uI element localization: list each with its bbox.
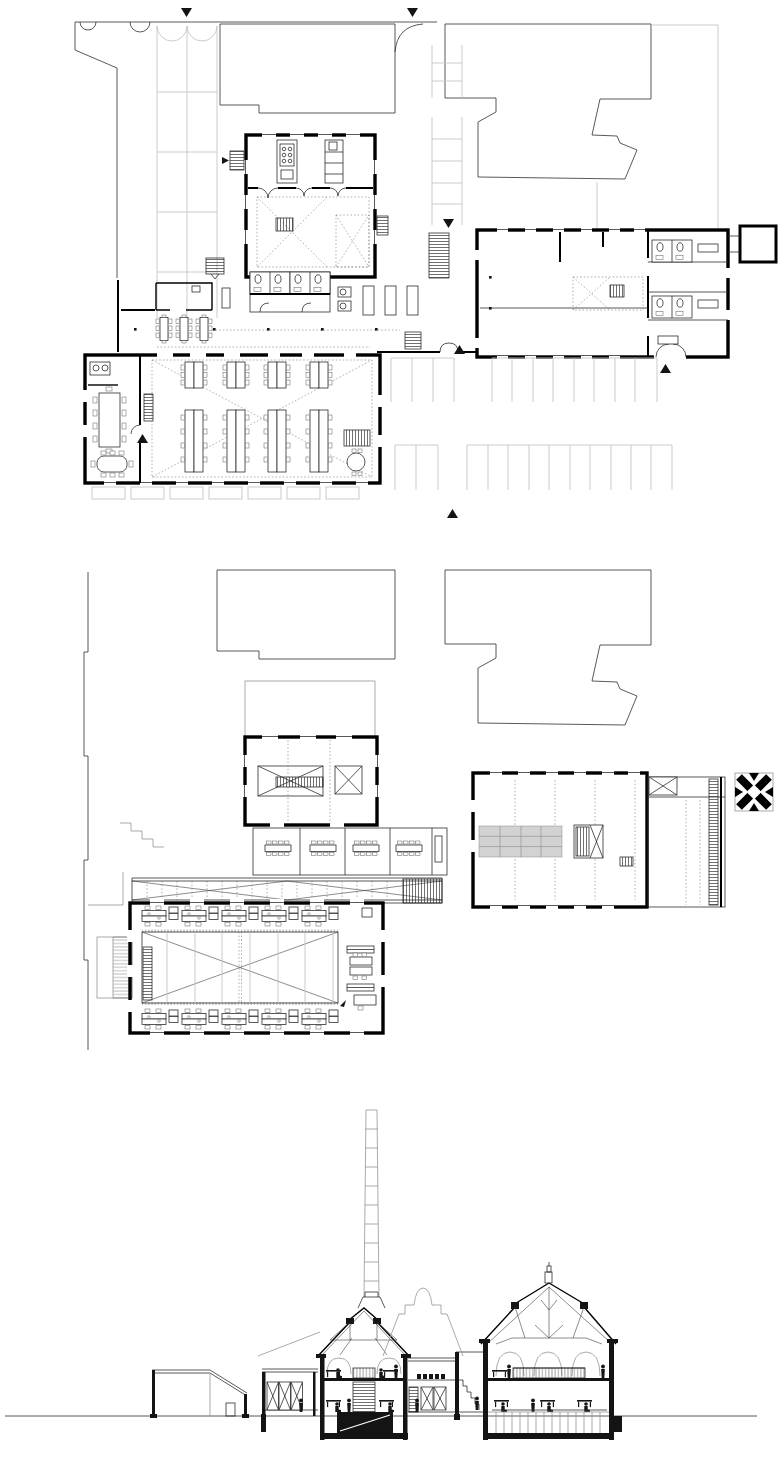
large-hall-section <box>479 1262 622 1440</box>
side-stair <box>377 216 388 235</box>
stair-core <box>325 140 343 183</box>
marker-up-icon <box>447 509 458 518</box>
north-hall-upper <box>241 733 381 828</box>
cross-section <box>5 1110 757 1440</box>
marker-down-icon <box>181 8 192 17</box>
north-hall <box>222 131 388 289</box>
east-hall <box>429 219 776 360</box>
corridor-furniture <box>338 286 477 354</box>
marker-down-icon <box>443 219 454 228</box>
shed-section <box>150 1370 249 1418</box>
void-opening <box>142 930 338 1006</box>
stair-core <box>574 825 633 866</box>
middle-link-section <box>408 1352 483 1420</box>
meeting-rooms <box>253 828 447 875</box>
stair <box>144 394 153 421</box>
glazed-link <box>261 1369 318 1432</box>
drawing-canvas <box>0 0 780 1472</box>
cross-logo <box>735 773 773 811</box>
roof-truss <box>487 1287 612 1344</box>
roof-projection <box>257 197 369 267</box>
marker-down-icon <box>407 8 418 17</box>
oval-table <box>91 451 133 477</box>
marker-up-icon <box>137 434 148 443</box>
service-core <box>277 140 297 183</box>
bridge <box>132 878 442 903</box>
architectural-sheet <box>0 0 780 1472</box>
context-buildings <box>220 24 718 228</box>
entry-ramp <box>429 233 449 278</box>
bridge-stair <box>403 879 442 903</box>
chimney <box>358 1110 385 1308</box>
site-boundary <box>84 572 88 1050</box>
lounge-corner <box>340 908 376 1010</box>
round-table <box>347 453 365 471</box>
east-hall-upper <box>470 769 647 910</box>
upper-floor-plan <box>84 570 773 1050</box>
entry-stair <box>230 151 244 170</box>
person-figure <box>299 1399 303 1412</box>
toilet-block <box>250 272 330 312</box>
meeting-room <box>93 387 126 453</box>
dome-building-outline <box>383 1288 463 1356</box>
entry-arrow-icon <box>222 157 229 164</box>
storage-grid <box>479 826 562 857</box>
stair <box>276 218 293 231</box>
marker-up-icon <box>660 364 671 373</box>
lockers <box>344 430 370 446</box>
roof-outline <box>245 681 375 737</box>
southwest-office-hall <box>82 347 383 499</box>
marker-up-icon <box>454 345 465 354</box>
side-aisle <box>648 777 725 907</box>
parking-stalls <box>391 358 672 490</box>
ground-floor-plan <box>75 8 776 518</box>
annex-box <box>740 226 776 262</box>
roof-finial <box>545 1262 552 1283</box>
roof-truss <box>322 1311 405 1355</box>
southwest-hall-upper <box>97 899 386 1036</box>
reception-room <box>88 362 118 385</box>
context-buildings <box>217 570 651 725</box>
